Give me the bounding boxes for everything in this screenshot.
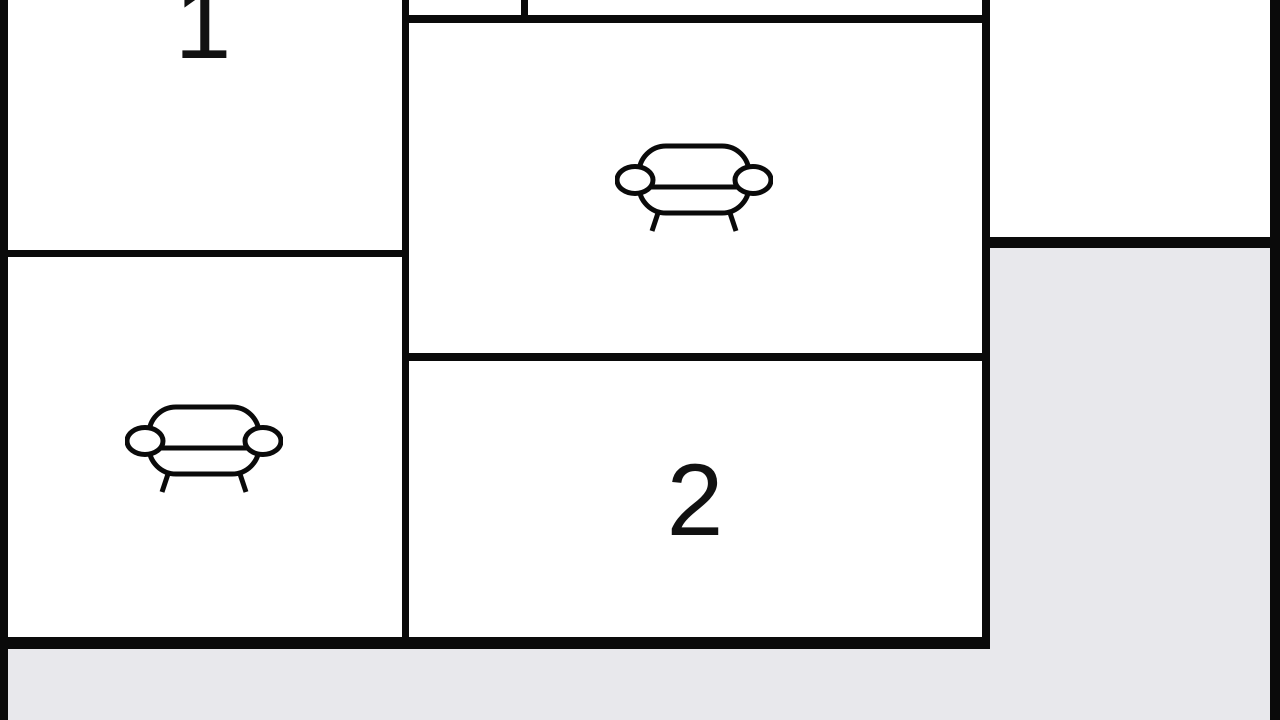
room-2-number: 2 (635, 449, 755, 551)
sofa-icon (615, 143, 773, 233)
wall-top-middle (402, 15, 990, 23)
wall-middle-divider (402, 353, 990, 361)
wall-right-outer (1270, 0, 1280, 720)
floor-plan: 1 2 (0, 0, 1280, 720)
outside-area-bottom (8, 649, 1270, 720)
wall-vertical-right-column (982, 0, 990, 647)
wall-outside-top (982, 237, 1280, 248)
wall-left-outer (0, 0, 8, 720)
sofa-icon (125, 404, 283, 494)
room-1-number: 1 (143, 0, 263, 74)
wall-bottom-outer (0, 637, 990, 649)
wall-room1-bottom (0, 250, 409, 257)
wall-vertical-main (402, 0, 409, 647)
room-top-right (990, 0, 1270, 237)
wall-top-stub (521, 0, 528, 17)
